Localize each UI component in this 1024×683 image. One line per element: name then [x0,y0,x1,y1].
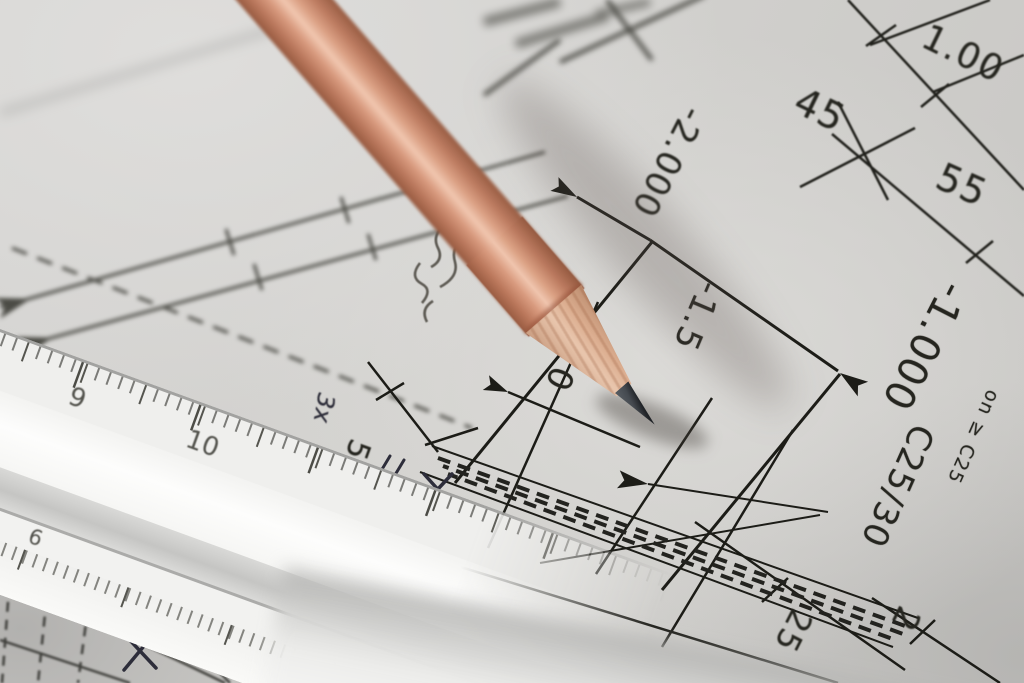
dimension-chain-lines [800,0,1024,296]
photo-of-technical-drawing: 1.004555-2.000-1.50-1.000C25/30on ≥ C252… [0,0,1024,683]
